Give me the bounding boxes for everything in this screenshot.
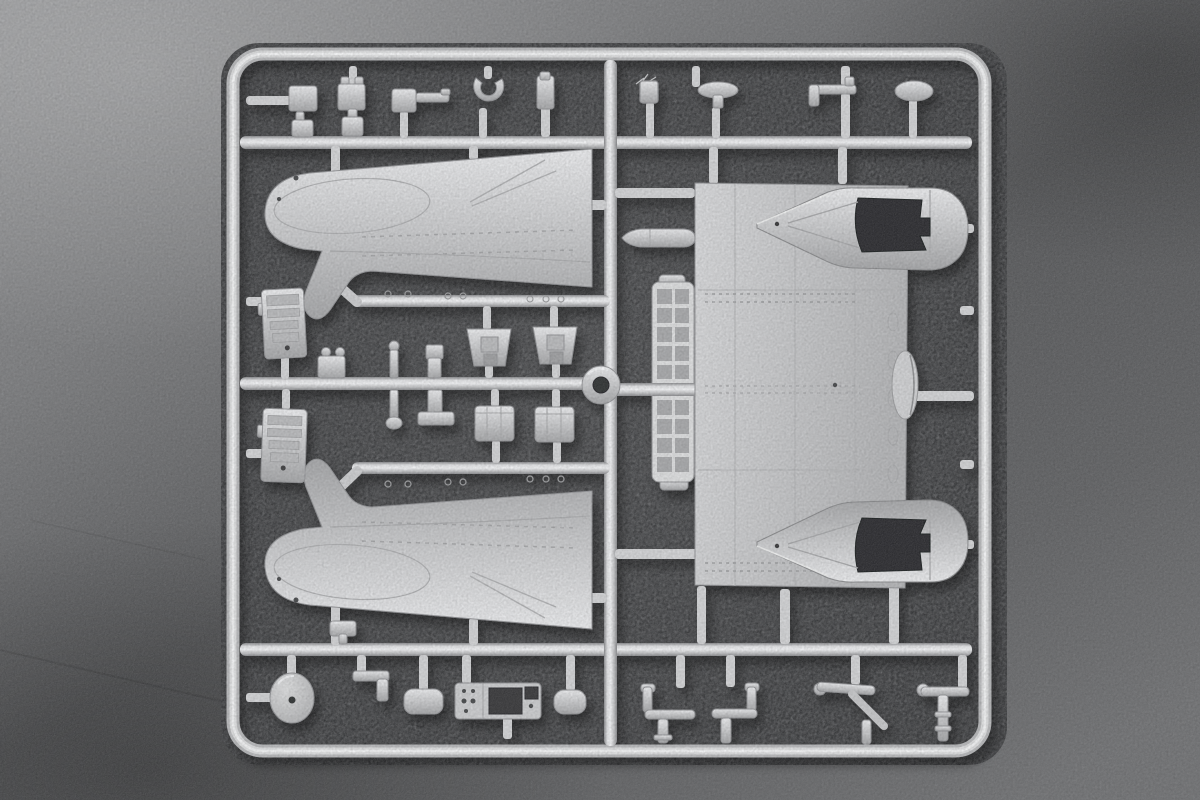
photo-stage: Light gray injection-molded plastic mode…: [0, 0, 1200, 800]
sprue-photo: [0, 0, 1200, 800]
photo-grain-dark: [0, 0, 1200, 800]
